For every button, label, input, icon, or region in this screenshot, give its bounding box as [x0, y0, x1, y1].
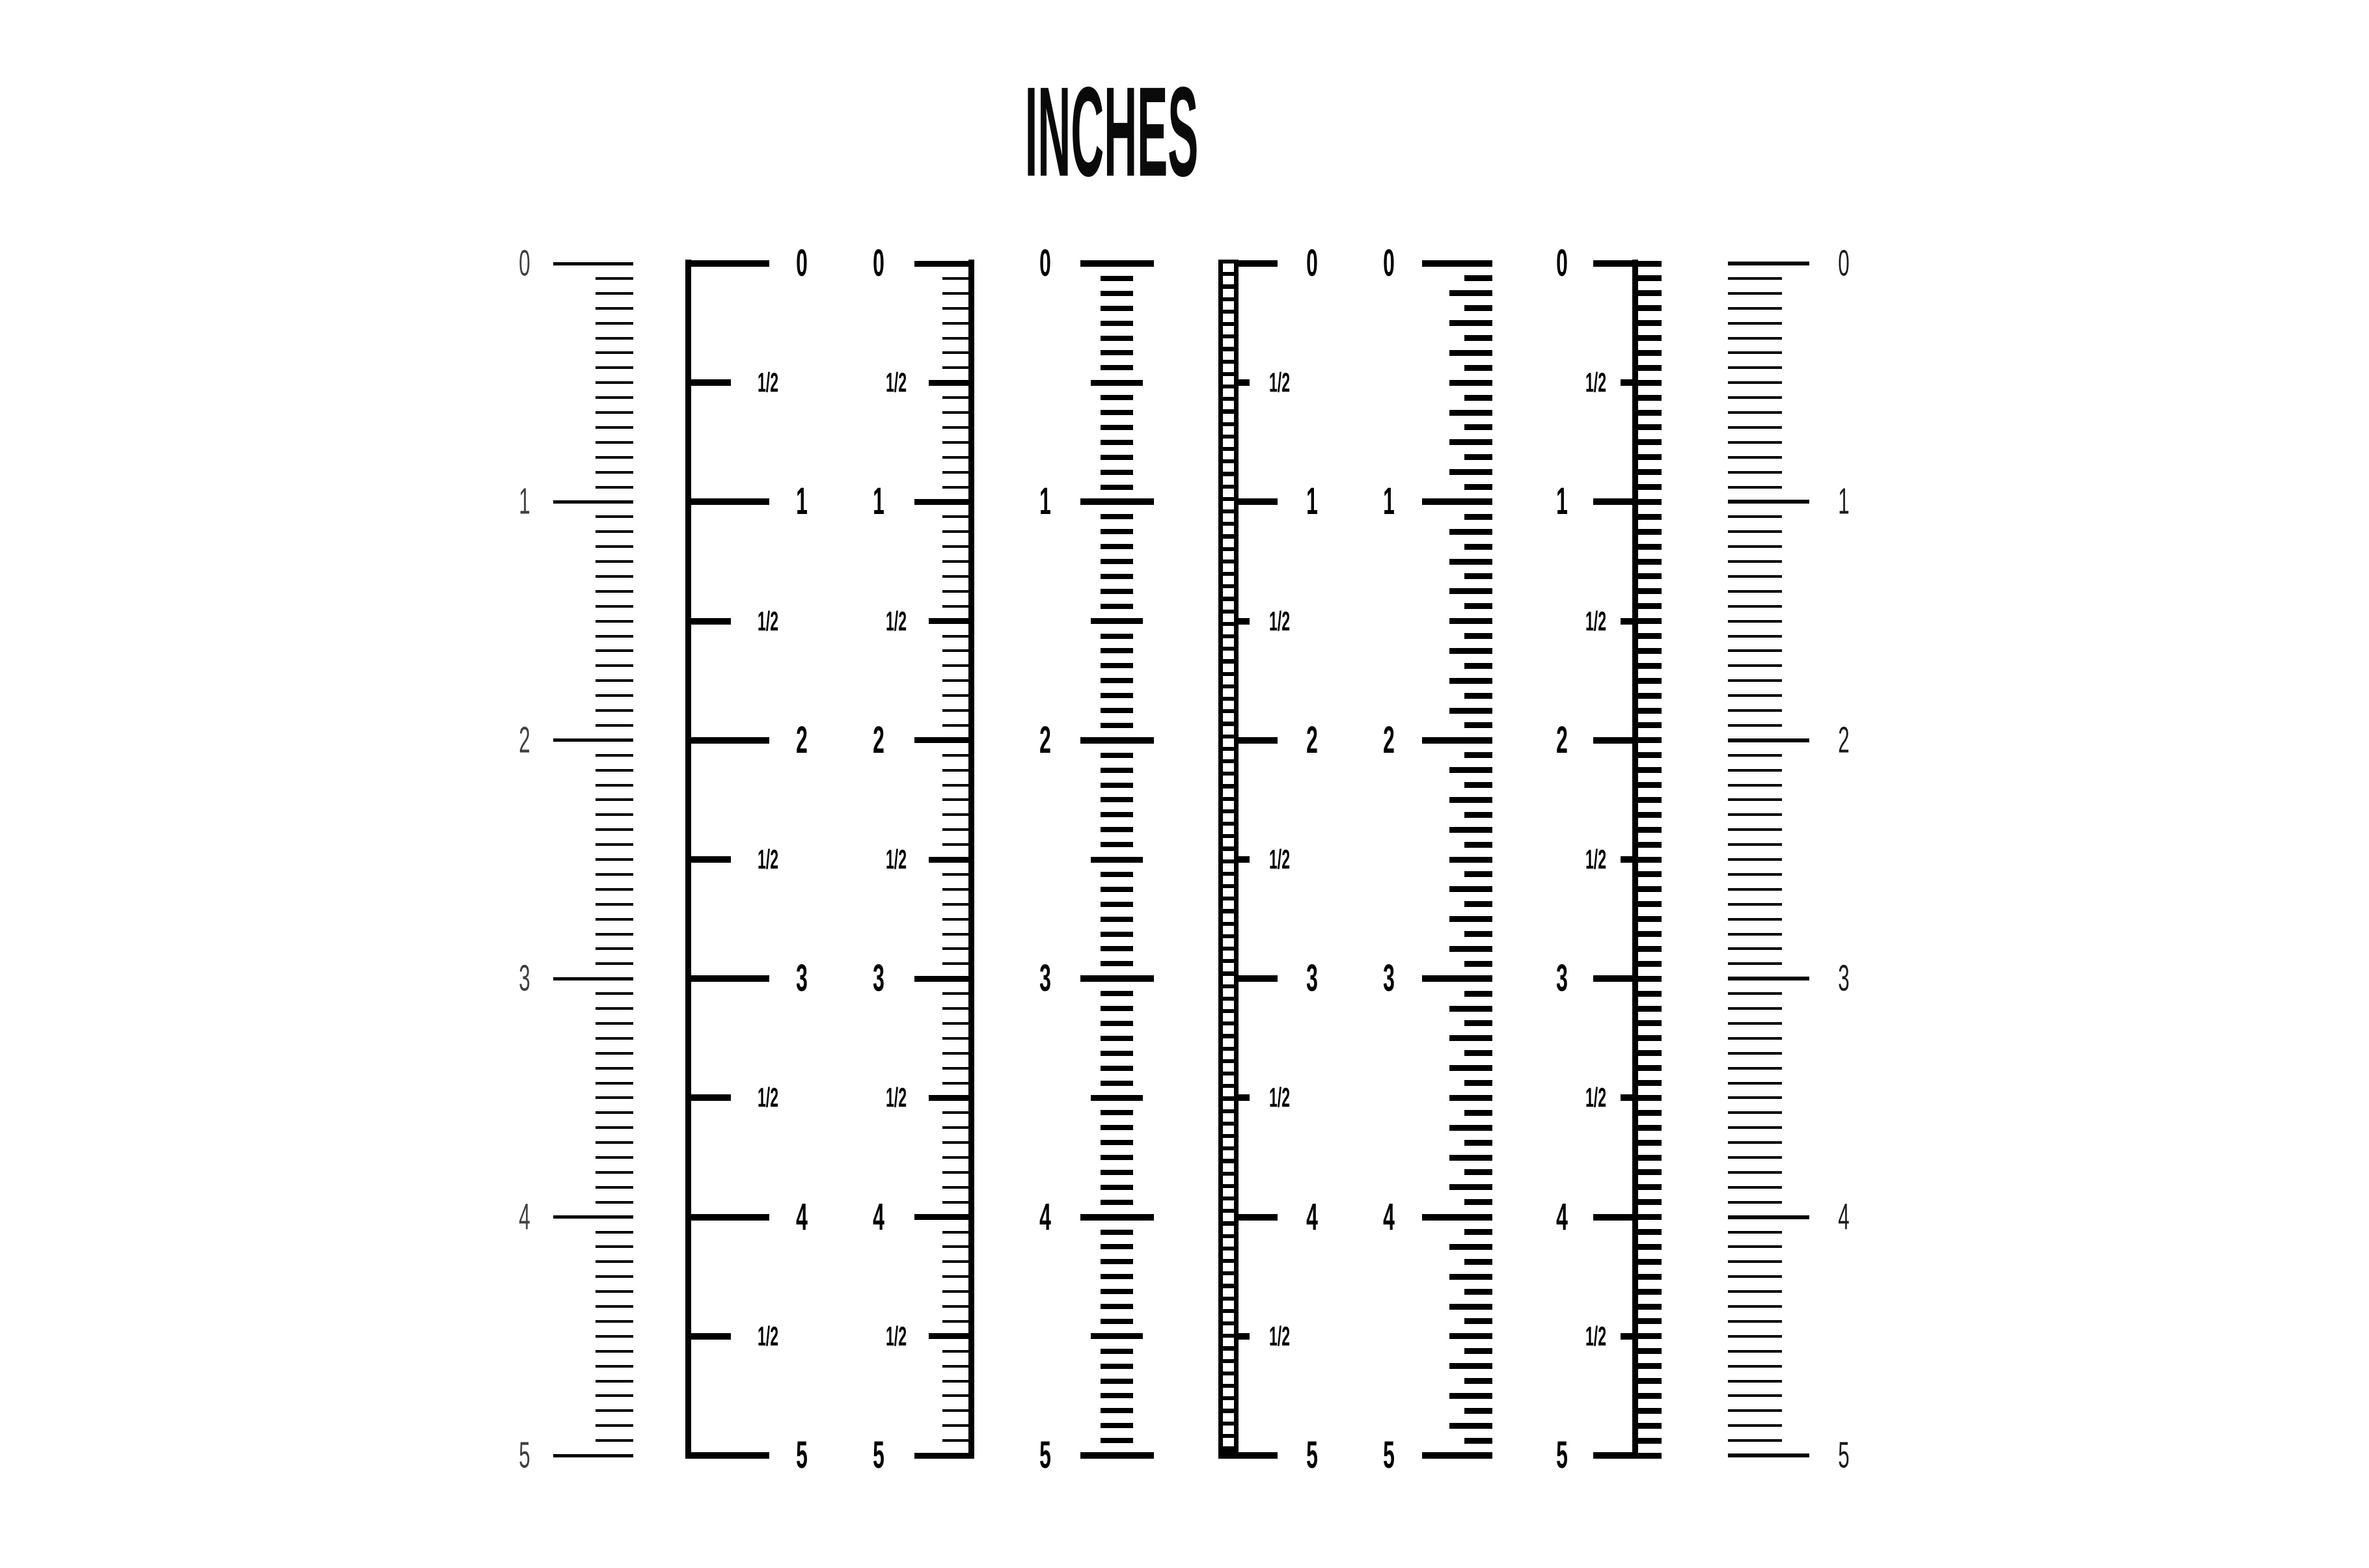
inch-label: 0	[796, 245, 808, 282]
sixteenth-tick	[942, 754, 968, 757]
sixteenth-tick	[1464, 1169, 1492, 1175]
ladder-rung-gap	[1223, 913, 1234, 922]
ladder-rung-gap	[1223, 1176, 1234, 1184]
sixteenth-tick	[1638, 573, 1662, 579]
ladder-rung-gap	[1223, 1288, 1234, 1297]
sixteenth-tick	[942, 1037, 968, 1040]
ladder-rung-gap	[1223, 1313, 1234, 1321]
ladder-rung-gap	[1223, 276, 1234, 284]
sixteenth-tick	[1638, 1020, 1662, 1026]
inch-tick	[914, 976, 970, 982]
sixteenth-tick	[1101, 917, 1133, 922]
ladder-rung-gap	[1223, 1163, 1234, 1172]
ladder-rung-gap	[1223, 851, 1234, 859]
eighth-tick	[1449, 350, 1492, 356]
sixteenth-tick	[1638, 410, 1662, 416]
sixteenth-tick	[1638, 529, 1662, 535]
ruler-number: 3	[519, 960, 530, 997]
inch-tick	[690, 260, 769, 267]
inch-tick	[690, 737, 769, 744]
inch-label: 2	[1383, 722, 1395, 759]
sixteenth-tick	[596, 679, 633, 682]
ruler-number: 4	[519, 1198, 530, 1236]
sixteenth-tick	[596, 1335, 633, 1338]
inch-label: 4	[1039, 1198, 1051, 1236]
half-inch-tick	[690, 379, 731, 386]
inch-tick	[1080, 975, 1154, 982]
ladder-rung-gap	[1223, 1088, 1234, 1096]
sixteenth-tick	[942, 933, 968, 936]
sixteenth-tick	[1638, 916, 1662, 922]
eighth-tick	[1449, 678, 1492, 684]
sixteenth-tick	[1101, 395, 1133, 400]
sixteenth-tick	[1638, 752, 1662, 758]
ladder-rung-gap	[1223, 1438, 1234, 1446]
ladder-rung-gap	[1223, 826, 1234, 834]
sixteenth-tick	[596, 1275, 633, 1278]
sixteenth-tick	[942, 1186, 968, 1189]
page-title: INCHES	[1025, 68, 1199, 196]
sixteenth-tick	[942, 1201, 968, 1204]
sixteenth-tick	[1728, 769, 1782, 772]
inch-label: 3	[873, 960, 884, 997]
inch-label: 0	[873, 245, 884, 282]
ruler-number: 0	[519, 245, 530, 282]
sixteenth-tick	[1728, 515, 1782, 518]
eighth-tick	[1449, 1363, 1492, 1369]
ladder-rung-gap	[1223, 801, 1234, 809]
sixteenth-tick	[596, 1022, 633, 1025]
inch-label: 1	[796, 483, 808, 520]
sixteenth-tick	[1638, 842, 1662, 848]
sixteenth-tick	[1464, 603, 1492, 609]
sixteenth-tick	[1101, 470, 1133, 475]
sixteenth-tick	[1464, 901, 1492, 907]
sixteenth-tick	[1728, 1424, 1782, 1427]
eighth-tick	[1449, 916, 1492, 922]
sixteenth-tick	[1728, 933, 1782, 936]
sixteenth-tick	[1728, 1409, 1782, 1412]
sixteenth-tick	[942, 1171, 968, 1174]
sixteenth-tick	[1638, 901, 1662, 907]
half-inch-tick	[929, 1095, 970, 1101]
eighth-tick	[1449, 767, 1492, 773]
ladder-rung-gap	[1223, 1113, 1234, 1122]
sixteenth-tick	[1101, 1393, 1133, 1398]
sixteenth-tick	[942, 1290, 968, 1293]
sixteenth-tick	[1464, 1408, 1492, 1414]
inch-tick	[1728, 1453, 1809, 1457]
ladder-rung-gap	[1223, 614, 1234, 622]
sixteenth-tick	[1101, 961, 1133, 966]
ladder-rung-gap	[1223, 1375, 1234, 1384]
half-inch-label: 1/2	[886, 846, 907, 873]
sixteenth-tick	[1638, 1318, 1662, 1324]
ladder-rung-gap	[1223, 1238, 1234, 1247]
inch-label: 5	[796, 1437, 808, 1474]
half-inch-tick	[1091, 857, 1143, 863]
inch-tick	[1239, 498, 1278, 505]
sixteenth-tick	[1728, 649, 1782, 652]
sixteenth-tick	[596, 307, 633, 310]
sixteenth-tick	[942, 888, 968, 891]
sixteenth-tick	[942, 1111, 968, 1114]
sixteenth-tick	[1728, 396, 1782, 399]
eighth-tick	[1449, 648, 1492, 654]
ruler-number: 1	[1838, 483, 1849, 520]
sixteenth-tick	[1728, 992, 1782, 995]
sixteenth-tick	[596, 962, 633, 965]
sixteenth-tick	[1638, 514, 1662, 520]
eighth-tick	[1449, 588, 1492, 594]
half-inch-label: 1/2	[1585, 1084, 1606, 1111]
ladder-rung-gap	[1223, 1275, 1234, 1284]
sixteenth-tick	[1728, 1231, 1782, 1234]
sixteenth-tick	[1638, 305, 1662, 311]
sixteenth-tick	[1464, 842, 1492, 848]
sixteenth-tick	[1638, 737, 1662, 743]
ladder-rung-gap	[1223, 1400, 1234, 1409]
sixteenth-tick	[596, 754, 633, 757]
sixteenth-tick	[1728, 843, 1782, 846]
ladder-rung-gap	[1223, 938, 1234, 947]
sixteenth-tick	[596, 605, 633, 608]
sixteenth-tick	[1728, 1096, 1782, 1099]
inch-tick	[1239, 1452, 1278, 1459]
sixteenth-tick	[596, 486, 633, 489]
sixteenth-tick	[942, 411, 968, 414]
ladder-rung-gap	[1223, 439, 1234, 447]
inch-tick	[690, 498, 769, 505]
sixteenth-tick	[1101, 276, 1133, 281]
ladder-rung-gap	[1223, 688, 1234, 697]
ladder-rung-gap	[1223, 576, 1234, 584]
sixteenth-tick	[942, 1424, 968, 1427]
ladder-rung-gap	[1223, 976, 1234, 984]
sixteenth-tick	[596, 903, 633, 906]
sixteenth-tick	[1464, 454, 1492, 460]
ladder-rung-gap	[1223, 876, 1234, 884]
sixteenth-tick	[942, 1052, 968, 1055]
sixteenth-tick	[1638, 1169, 1662, 1175]
sixteenth-tick	[942, 337, 968, 340]
sixteenth-tick	[1638, 1348, 1662, 1354]
sixteenth-tick	[1101, 1051, 1133, 1056]
ruler-number: 2	[1838, 722, 1849, 759]
sixteenth-tick	[1638, 1155, 1662, 1161]
ladder-rung-gap	[1223, 326, 1234, 334]
sixteenth-tick	[1464, 1050, 1492, 1056]
inch-tick	[1239, 975, 1278, 982]
inch-tick	[1422, 1452, 1492, 1459]
sixteenth-tick	[1728, 1022, 1782, 1025]
sixteenth-tick	[1101, 544, 1133, 549]
sixteenth-tick	[1638, 1378, 1662, 1384]
half-inch-tick	[1621, 618, 1632, 625]
sixteenth-tick	[596, 530, 633, 533]
sixteenth-tick	[1638, 350, 1662, 356]
sixteenth-tick	[596, 1156, 633, 1159]
sixteenth-tick	[596, 575, 633, 578]
sixteenth-tick	[1728, 1245, 1782, 1248]
eighth-tick	[1449, 469, 1492, 475]
inch-label: 5	[1383, 1437, 1395, 1474]
sixteenth-tick	[942, 1350, 968, 1353]
sixteenth-tick	[942, 873, 968, 876]
sixteenth-tick	[1728, 828, 1782, 831]
inch-tick	[553, 977, 633, 980]
sixteenth-tick	[1464, 1348, 1492, 1354]
sixteenth-tick	[596, 1320, 633, 1323]
sixteenth-tick	[1728, 1260, 1782, 1263]
sixteenth-tick	[596, 664, 633, 667]
sixteenth-tick	[1638, 961, 1662, 967]
sixteenth-tick	[1728, 813, 1782, 816]
sixteenth-tick	[1101, 514, 1133, 519]
inch-label: 3	[1039, 960, 1051, 997]
inch-label: 3	[1306, 960, 1318, 997]
sixteenth-tick	[1728, 664, 1782, 667]
sixteenth-tick	[1638, 544, 1662, 550]
inch-tick	[1239, 1214, 1278, 1221]
sixteenth-tick	[1101, 410, 1133, 415]
eighth-tick	[1449, 1155, 1492, 1161]
sixteenth-tick	[1728, 1156, 1782, 1159]
sixteenth-tick	[1638, 439, 1662, 445]
sixteenth-tick	[1638, 290, 1662, 296]
sixteenth-tick	[1728, 1290, 1782, 1293]
sixteenth-tick	[596, 1096, 633, 1099]
sixteenth-tick	[1728, 337, 1782, 340]
sixteenth-tick	[942, 1275, 968, 1278]
half-inch-label: 1/2	[886, 1084, 907, 1111]
sixteenth-tick	[1728, 530, 1782, 533]
half-inch-label: 1/2	[758, 608, 778, 635]
sixteenth-tick	[1728, 1335, 1782, 1338]
sixteenth-tick	[1638, 320, 1662, 326]
sixteenth-tick	[596, 560, 633, 563]
sixteenth-tick	[1638, 1289, 1662, 1295]
sixteenth-tick	[942, 1245, 968, 1248]
ladder-rung-gap	[1223, 701, 1234, 709]
sixteenth-tick	[1728, 441, 1782, 444]
sixteenth-tick	[1101, 425, 1133, 430]
sixteenth-tick	[596, 1067, 633, 1070]
sixteenth-tick	[1728, 1380, 1782, 1383]
sixteenth-tick	[942, 1126, 968, 1129]
inch-tick	[1728, 738, 1809, 742]
sixteenth-tick	[942, 351, 968, 354]
inch-tick	[1593, 975, 1632, 982]
inch-tick	[1080, 1214, 1154, 1221]
sixteenth-tick	[596, 1231, 633, 1234]
sixteenth-tick	[1101, 306, 1133, 311]
sixteenth-tick	[1101, 1170, 1133, 1175]
sixteenth-tick	[596, 694, 633, 697]
sixteenth-tick	[1101, 946, 1133, 951]
inch-tick	[1728, 977, 1809, 980]
sixteenth-tick	[1638, 886, 1662, 892]
sixteenth-tick	[942, 590, 968, 593]
sixteenth-tick	[1101, 634, 1133, 639]
inch-tick	[553, 262, 633, 265]
ladder-rung-gap	[1223, 451, 1234, 459]
eighth-tick	[1449, 320, 1492, 326]
sixteenth-tick	[942, 366, 968, 369]
sixteenth-tick	[1464, 752, 1492, 758]
eighth-tick	[1449, 1274, 1492, 1280]
sixteenth-tick	[1464, 1318, 1492, 1324]
sixteenth-tick	[1638, 1244, 1662, 1250]
eighth-tick	[1449, 529, 1492, 535]
sixteenth-tick	[1101, 1379, 1133, 1384]
sixteenth-tick	[596, 1141, 633, 1144]
sixteenth-tick	[596, 1126, 633, 1129]
sixteenth-tick	[1728, 545, 1782, 548]
ladder-rung-gap	[1223, 951, 1234, 959]
ruler-number: 0	[1838, 245, 1849, 282]
sixteenth-tick	[1728, 918, 1782, 921]
sixteenth-tick	[1464, 1259, 1492, 1265]
ladder-rung-gap	[1223, 1126, 1234, 1134]
sixteenth-tick	[596, 396, 633, 399]
sixteenth-tick	[596, 1007, 633, 1010]
sixteenth-tick	[1464, 424, 1492, 430]
half-inch-tick	[1239, 618, 1250, 625]
sixteenth-tick	[1464, 693, 1492, 699]
ladder-rung-gap	[1223, 513, 1234, 522]
ladder-rung-gap	[1223, 601, 1234, 610]
eighth-tick	[1449, 618, 1492, 624]
ladder-rung-gap	[1223, 726, 1234, 735]
sixteenth-tick	[1728, 620, 1782, 623]
inch-tick	[1080, 498, 1154, 505]
sixteenth-tick	[1638, 1408, 1662, 1414]
ladder-rung-gap	[1223, 651, 1234, 659]
ladder-rung-gap	[1223, 1325, 1234, 1334]
sixteenth-tick	[1638, 1304, 1662, 1310]
sixteenth-tick	[1728, 1350, 1782, 1353]
eighth-tick	[1449, 1035, 1492, 1041]
sixteenth-tick	[1728, 605, 1782, 608]
sixteenth-tick	[1728, 679, 1782, 682]
sixteenth-tick	[1101, 768, 1133, 773]
sixteenth-tick	[1638, 1229, 1662, 1235]
ladder-rung-gap	[1223, 351, 1234, 360]
ladder-rung-gap	[1223, 426, 1234, 435]
half-inch-label: 1/2	[886, 608, 907, 635]
inch-tick	[1080, 260, 1154, 267]
sixteenth-tick	[1728, 1082, 1782, 1085]
sixteenth-tick	[596, 769, 633, 772]
sixteenth-tick	[1464, 871, 1492, 877]
sixteenth-tick	[942, 441, 968, 444]
sixteenth-tick	[596, 947, 633, 950]
sixteenth-tick	[1638, 1125, 1662, 1131]
half-inch-tick	[690, 1094, 731, 1101]
sixteenth-tick	[596, 1082, 633, 1085]
sixteenth-tick	[1638, 857, 1662, 863]
inch-label: 1	[873, 483, 884, 520]
sixteenth-tick	[942, 1156, 968, 1159]
sixteenth-tick	[1101, 1304, 1133, 1309]
sixteenth-tick	[1728, 1439, 1782, 1442]
inch-tick	[1080, 1452, 1154, 1459]
sixteenth-tick	[1101, 1364, 1133, 1369]
ruler-number: 5	[1838, 1437, 1849, 1474]
sixteenth-tick	[1728, 694, 1782, 697]
sixteenth-tick	[1101, 1021, 1133, 1026]
half-inch-label: 1/2	[1269, 608, 1290, 635]
ladder-rung-gap	[1223, 388, 1234, 397]
sixteenth-tick	[1638, 559, 1662, 565]
sixteenth-tick	[1638, 469, 1662, 475]
sixteenth-tick	[1638, 871, 1662, 877]
ladder-rung-gap	[1223, 1101, 1234, 1109]
sixteenth-tick	[596, 351, 633, 354]
sixteenth-tick	[942, 277, 968, 280]
sixteenth-tick	[1638, 797, 1662, 803]
sixteenth-tick	[1101, 797, 1133, 802]
inch-label: 0	[1039, 245, 1051, 282]
sixteenth-tick	[1728, 366, 1782, 369]
sixteenth-tick	[942, 1082, 968, 1085]
sixteenth-tick	[1728, 560, 1782, 563]
half-inch-label: 1/2	[1585, 1323, 1606, 1350]
half-inch-label: 1/2	[758, 1084, 778, 1111]
sixteenth-tick	[942, 962, 968, 965]
sixteenth-tick	[1638, 782, 1662, 788]
sixteenth-tick	[942, 635, 968, 638]
sixteenth-tick	[1464, 484, 1492, 490]
ladder-rung-gap	[1223, 314, 1234, 322]
sixteenth-tick	[942, 724, 968, 727]
ladder-rung-gap	[1223, 1025, 1234, 1034]
ladder-rung-gap	[1223, 338, 1234, 347]
half-inch-tick	[1091, 618, 1143, 624]
ladder-rung-gap	[1223, 863, 1234, 872]
ladder-rung-gap	[1223, 376, 1234, 385]
sixteenth-tick	[596, 933, 633, 936]
sixteenth-tick	[596, 1245, 633, 1248]
ladder-rung-gap	[1223, 988, 1234, 997]
sixteenth-tick	[1638, 633, 1662, 639]
sixteenth-tick	[1101, 708, 1133, 713]
sixteenth-tick	[596, 843, 633, 846]
ladder-rung-gap	[1223, 301, 1234, 310]
inch-label: 4	[1556, 1198, 1568, 1236]
inch-tick	[1239, 260, 1278, 267]
sixteenth-tick	[1101, 1438, 1133, 1443]
sixteenth-tick	[1464, 1199, 1492, 1205]
sixteenth-tick	[596, 411, 633, 414]
sixteenth-tick	[1728, 575, 1782, 578]
sixteenth-tick	[1728, 1067, 1782, 1070]
sixteenth-tick	[1728, 1305, 1782, 1308]
sixteenth-tick	[1728, 947, 1782, 950]
sixteenth-tick	[1101, 812, 1133, 817]
sixteenth-tick	[1464, 1289, 1492, 1295]
sixteenth-tick	[1464, 1080, 1492, 1086]
inch-tick	[553, 1215, 633, 1219]
inch-label: 4	[796, 1198, 808, 1236]
sixteenth-tick	[1638, 931, 1662, 937]
sixteenth-tick	[596, 1186, 633, 1189]
ladder-rung-gap	[1223, 476, 1234, 485]
sixteenth-tick	[1638, 1065, 1662, 1071]
sixteenth-tick	[1638, 1333, 1662, 1339]
sixteenth-tick	[942, 1380, 968, 1383]
